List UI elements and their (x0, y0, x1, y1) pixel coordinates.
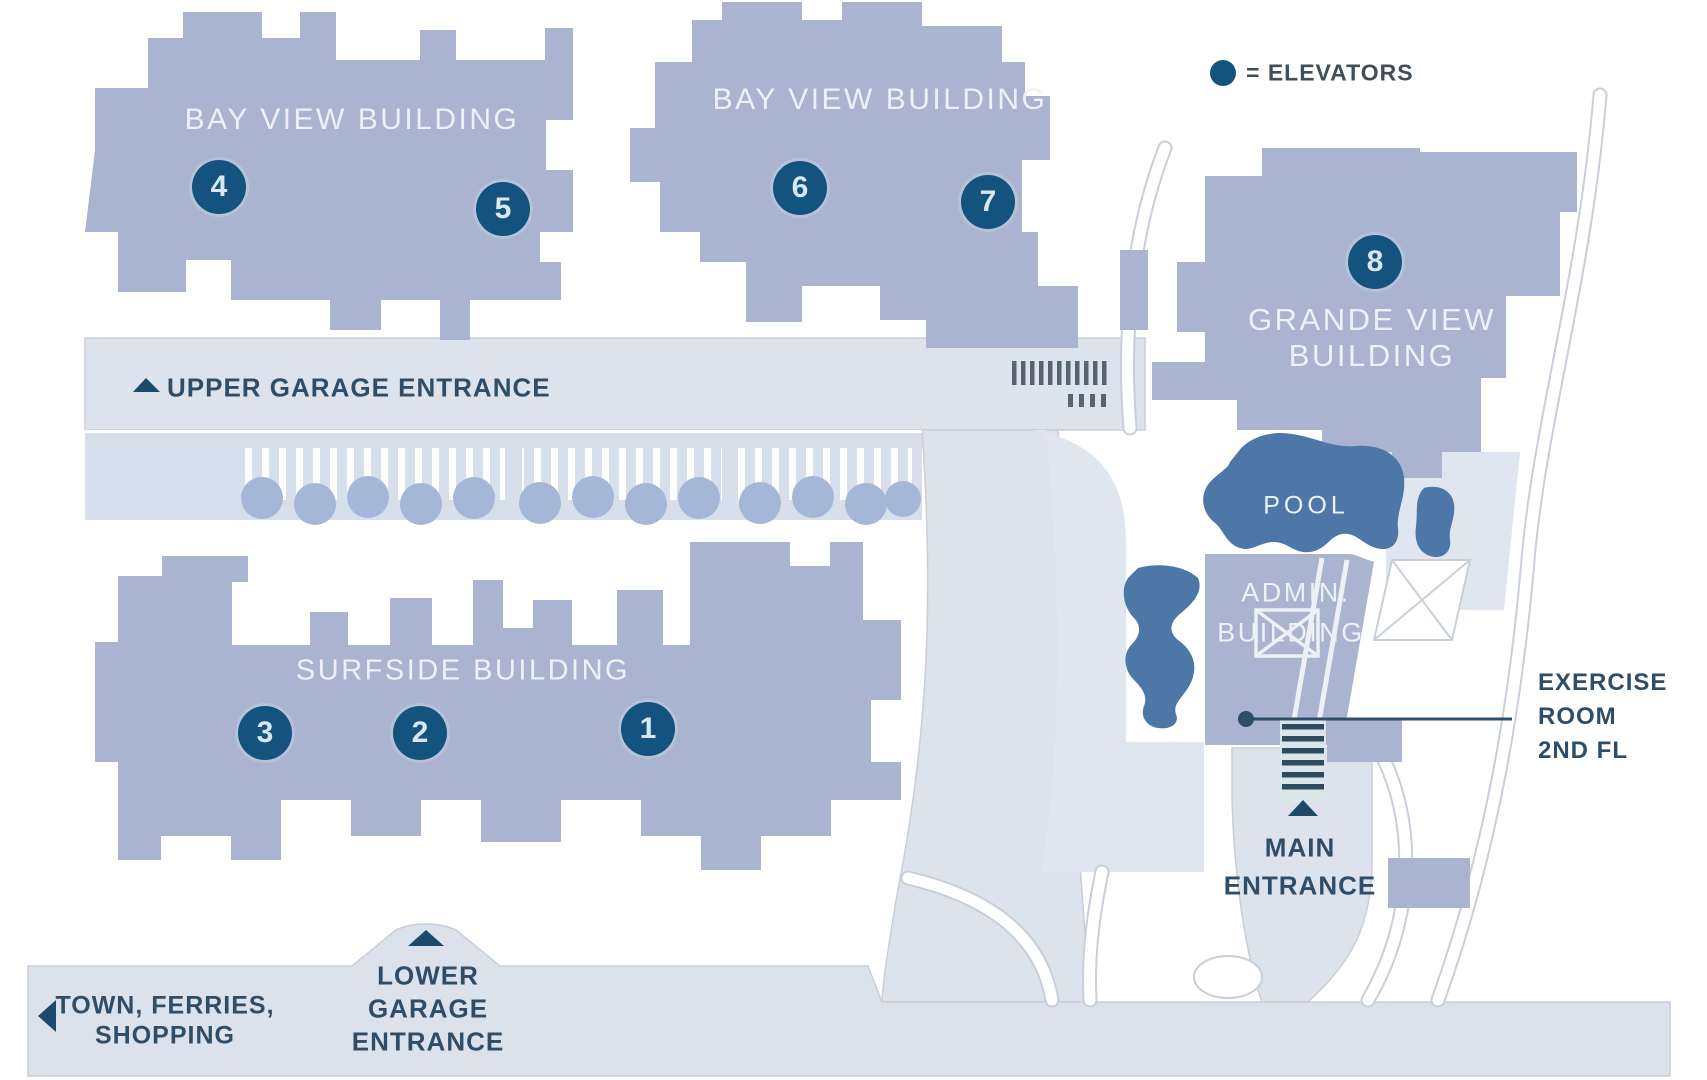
legend-label: = ELEVATORS (1246, 60, 1414, 87)
main-entrance-label-line1: MAIN (1265, 833, 1335, 864)
elevator-marker-5: 5 (476, 182, 530, 236)
elevator-marker-1: 1 (621, 702, 675, 756)
outbuilding-east (1327, 718, 1402, 762)
exercise-room-label-line1: EXERCISE (1538, 669, 1667, 697)
main-entrance-label-line2: ENTRANCE (1224, 871, 1376, 902)
upper-garage-label: UPPER GARAGE ENTRANCE (167, 373, 551, 404)
lower-garage-label-line2: GARAGE (368, 994, 488, 1025)
ramp (1374, 560, 1470, 640)
drive-island (1194, 956, 1262, 998)
site-map-graphics (0, 0, 1707, 1080)
grande-view-annex (1120, 250, 1148, 330)
outbuilding-southeast (1388, 858, 1470, 908)
surfside-building (95, 542, 901, 870)
entrance-stairs (1280, 718, 1326, 802)
town-label-line2: SHOPPING (95, 1022, 235, 1051)
exercise-room-label-line3: 2ND FL (1538, 737, 1628, 765)
bay-view-east-label: BAY VIEW BUILDING (713, 83, 1048, 117)
admin-label-line1: ADMIN. (1241, 578, 1351, 609)
lower-garage-label-line1: LOWER (377, 961, 479, 992)
bay-view-west-label: BAY VIEW BUILDING (185, 103, 520, 137)
exercise-room-label-line2: ROOM (1538, 703, 1617, 731)
site-map: = ELEVATORS BAY VIEW BUILDING BAY VIEW B… (0, 0, 1707, 1080)
bay-view-east-building (630, 2, 1078, 348)
elevator-marker-3: 3 (238, 706, 292, 760)
fountain-shape (1124, 565, 1200, 728)
elevator-marker-4: 4 (192, 160, 246, 214)
grande-view-label-line2: BUILDING (1289, 338, 1455, 374)
elevator-marker-2: 2 (393, 706, 447, 760)
bay-view-west-building (85, 12, 573, 340)
admin-label-line2: BUILDING (1217, 618, 1365, 649)
town-label-line1: TOWN, FERRIES, (55, 992, 274, 1021)
surfside-label: SURFSIDE BUILDING (296, 655, 630, 688)
pool-label: POOL (1263, 492, 1348, 521)
spa-shape (1416, 487, 1455, 557)
grande-view-label-line1: GRANDE VIEW (1248, 302, 1496, 338)
elevator-marker-7: 7 (961, 175, 1015, 229)
elevator-marker-8: 8 (1348, 235, 1402, 289)
elevator-dot-icon (1210, 60, 1236, 86)
elevator-marker-6: 6 (773, 161, 827, 215)
lower-garage-label-line3: ENTRANCE (352, 1027, 504, 1058)
